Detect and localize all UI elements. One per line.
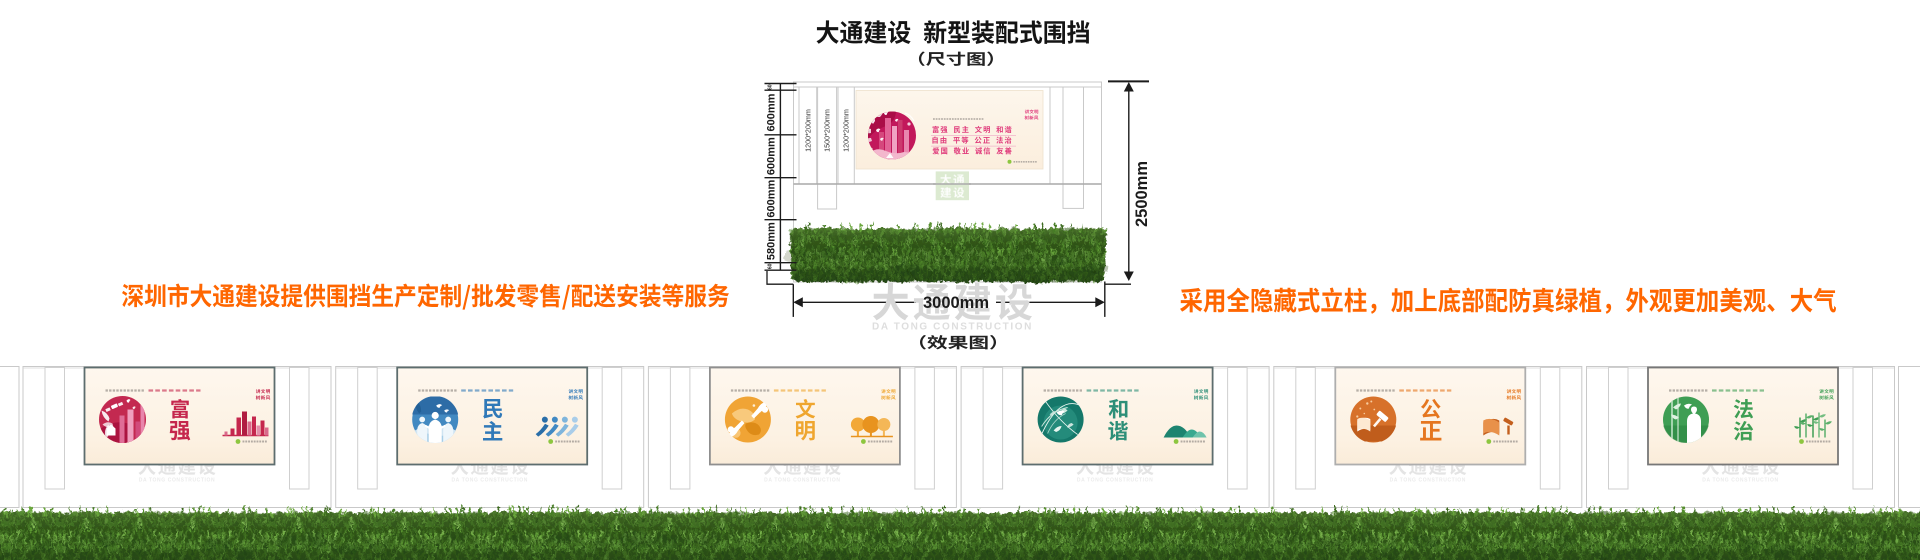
svg-text:1200*200mm: 1200*200mm xyxy=(842,109,851,152)
svg-text:1500*200mm: 1500*200mm xyxy=(823,109,832,152)
svg-text:DA TONG CONSTRUCTION: DA TONG CONSTRUCTION xyxy=(139,478,215,484)
svg-text:600mm: 600mm xyxy=(766,180,778,218)
svg-text:DA TONG CONSTRUCTION: DA TONG CONSTRUCTION xyxy=(451,478,527,484)
svg-text:3000mm: 3000mm xyxy=(923,294,989,312)
svg-text:600mm: 600mm xyxy=(766,93,778,131)
svg-text:2500mm: 2500mm xyxy=(1133,161,1151,227)
svg-text:600mm: 600mm xyxy=(766,137,778,175)
svg-text:DA TONG CONSTRUCTION: DA TONG CONSTRUCTION xyxy=(872,322,1033,333)
svg-text:580mm: 580mm xyxy=(766,222,778,260)
svg-text:60: 60 xyxy=(768,263,774,269)
svg-text:DA TONG CONSTRUCTION: DA TONG CONSTRUCTION xyxy=(1390,478,1466,484)
svg-text:DA TONG CONSTRUCTION: DA TONG CONSTRUCTION xyxy=(764,478,840,484)
svg-text:DA TONG CONSTRUCTION: DA TONG CONSTRUCTION xyxy=(1702,478,1778,484)
svg-text:DA TONG CONSTRUCTION: DA TONG CONSTRUCTION xyxy=(1077,478,1153,484)
svg-text:60: 60 xyxy=(768,84,774,90)
svg-text:1200*200mm: 1200*200mm xyxy=(803,109,812,152)
